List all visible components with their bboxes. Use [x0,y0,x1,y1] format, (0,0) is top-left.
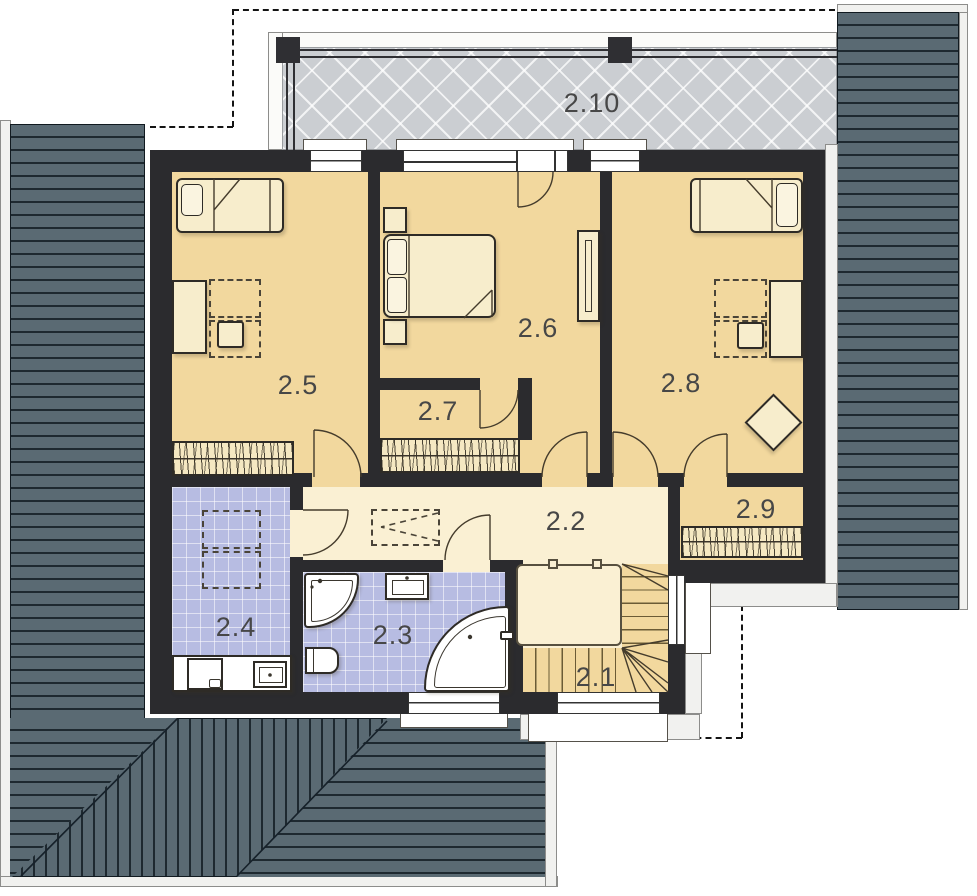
roof-trim-bottom-right [545,718,557,887]
threshold-2-8 [613,473,658,487]
desk-2-5 [172,280,207,354]
terrace-post-left [276,37,300,63]
floor-hallway-2-2 [303,487,668,560]
terrace-trim-top [268,32,837,48]
toilet-tank [307,649,314,672]
threshold-2-6 [542,473,587,487]
room-label-2-5: 2.5 [270,370,326,401]
dashed-appliance-2-4-upper [202,510,261,549]
wardrobe-2-5 [172,441,294,476]
terrace-railing-top [292,49,837,58]
window-stairs-right [668,575,685,645]
nightstand-2-6-bottom [383,319,407,345]
window-sill-bottom-bathroom [400,712,508,728]
railing-post [592,559,602,569]
window-mullion [404,161,516,163]
terrace-post-middle [608,37,632,63]
stairs-winder-corner [622,648,668,692]
room-label-2-1: 2.1 [568,662,624,693]
nightstand-2-6-top [383,207,407,233]
chair-2-5 [217,321,244,348]
threshold-2-7 [480,378,518,390]
stairwell-void-railing [516,564,622,646]
dashed-outline-top [233,9,835,11]
window-terrace-door-2-6 [403,150,568,172]
wardrobe-2-9 [681,526,803,558]
window-bedroom-2-5 [310,150,362,172]
threshold-2-9 [684,473,727,487]
room-label-2-8: 2.8 [653,368,709,399]
room-label-2-6: 2.6 [510,313,566,344]
wardrobe-unit-2-6 [577,230,600,322]
washbasin-2-3 [385,573,429,600]
window-sill-bottom-stairs [528,712,668,742]
dashed-wardrobe-2-2 [371,509,440,546]
room-label-2-3: 2.3 [365,620,421,651]
dashed-appliance-2-4-lower [202,551,261,589]
room-label-2-7: 2.7 [410,396,466,427]
bathtub-faucet [500,631,514,640]
dashed-outline-topleft-vertical [232,9,234,127]
wardrobe-unit-slot [585,240,592,312]
toilet-2-3 [305,647,339,674]
window-bedroom-2-8 [590,150,640,172]
washbasin-bowl [259,667,283,683]
desk-2-8 [769,280,803,358]
roof-right [837,12,959,610]
floor-corridor-2-6 [532,378,600,473]
room-label-2-10: 2.10 [550,88,634,119]
wardrobe-2-7 [380,438,520,473]
chair-2-8 [737,322,764,349]
threshold-2-4 [290,510,303,557]
floor-plan: 2.10 2.5 2.6 2.7 2.8 2.9 2.2 2.4 2.3 2.1 [0,0,977,896]
dashed-storage-2-5-upper [209,279,261,318]
terrace-door-jamb-left [516,151,518,171]
floor-closet-2-7-patch [518,440,532,473]
washbasin-2-4 [253,661,287,688]
washbasin-bowl [392,580,424,595]
pillow-2-5 [181,184,203,216]
railing-post [548,559,558,569]
stairs-upper-flight [622,564,668,648]
pillow-2-6-bottom [387,277,407,313]
threshold-2-3 [443,560,490,572]
room-label-2-4: 2.4 [208,612,264,643]
terrace-door-jamb-right [554,151,556,171]
room-label-2-9: 2.9 [728,494,784,525]
threshold-2-5 [312,473,360,487]
pillow-2-8 [776,183,798,227]
building-trim-right [825,144,838,607]
washing-machine-2-4 [187,658,223,690]
dashed-outline-right-vertical [741,605,743,738]
dashed-outline-topleft-horizontal [150,126,233,128]
window-stairs-bottom [557,692,660,714]
roof-trim-right-edge [959,12,968,610]
pillow-2-6-top [387,239,407,275]
roof-trim-bottom [0,876,558,887]
window-bathroom-2-3 [408,692,500,714]
room-label-2-2: 2.2 [538,506,594,537]
dashed-storage-2-8-upper [714,279,767,318]
washing-machine-door [209,679,221,688]
